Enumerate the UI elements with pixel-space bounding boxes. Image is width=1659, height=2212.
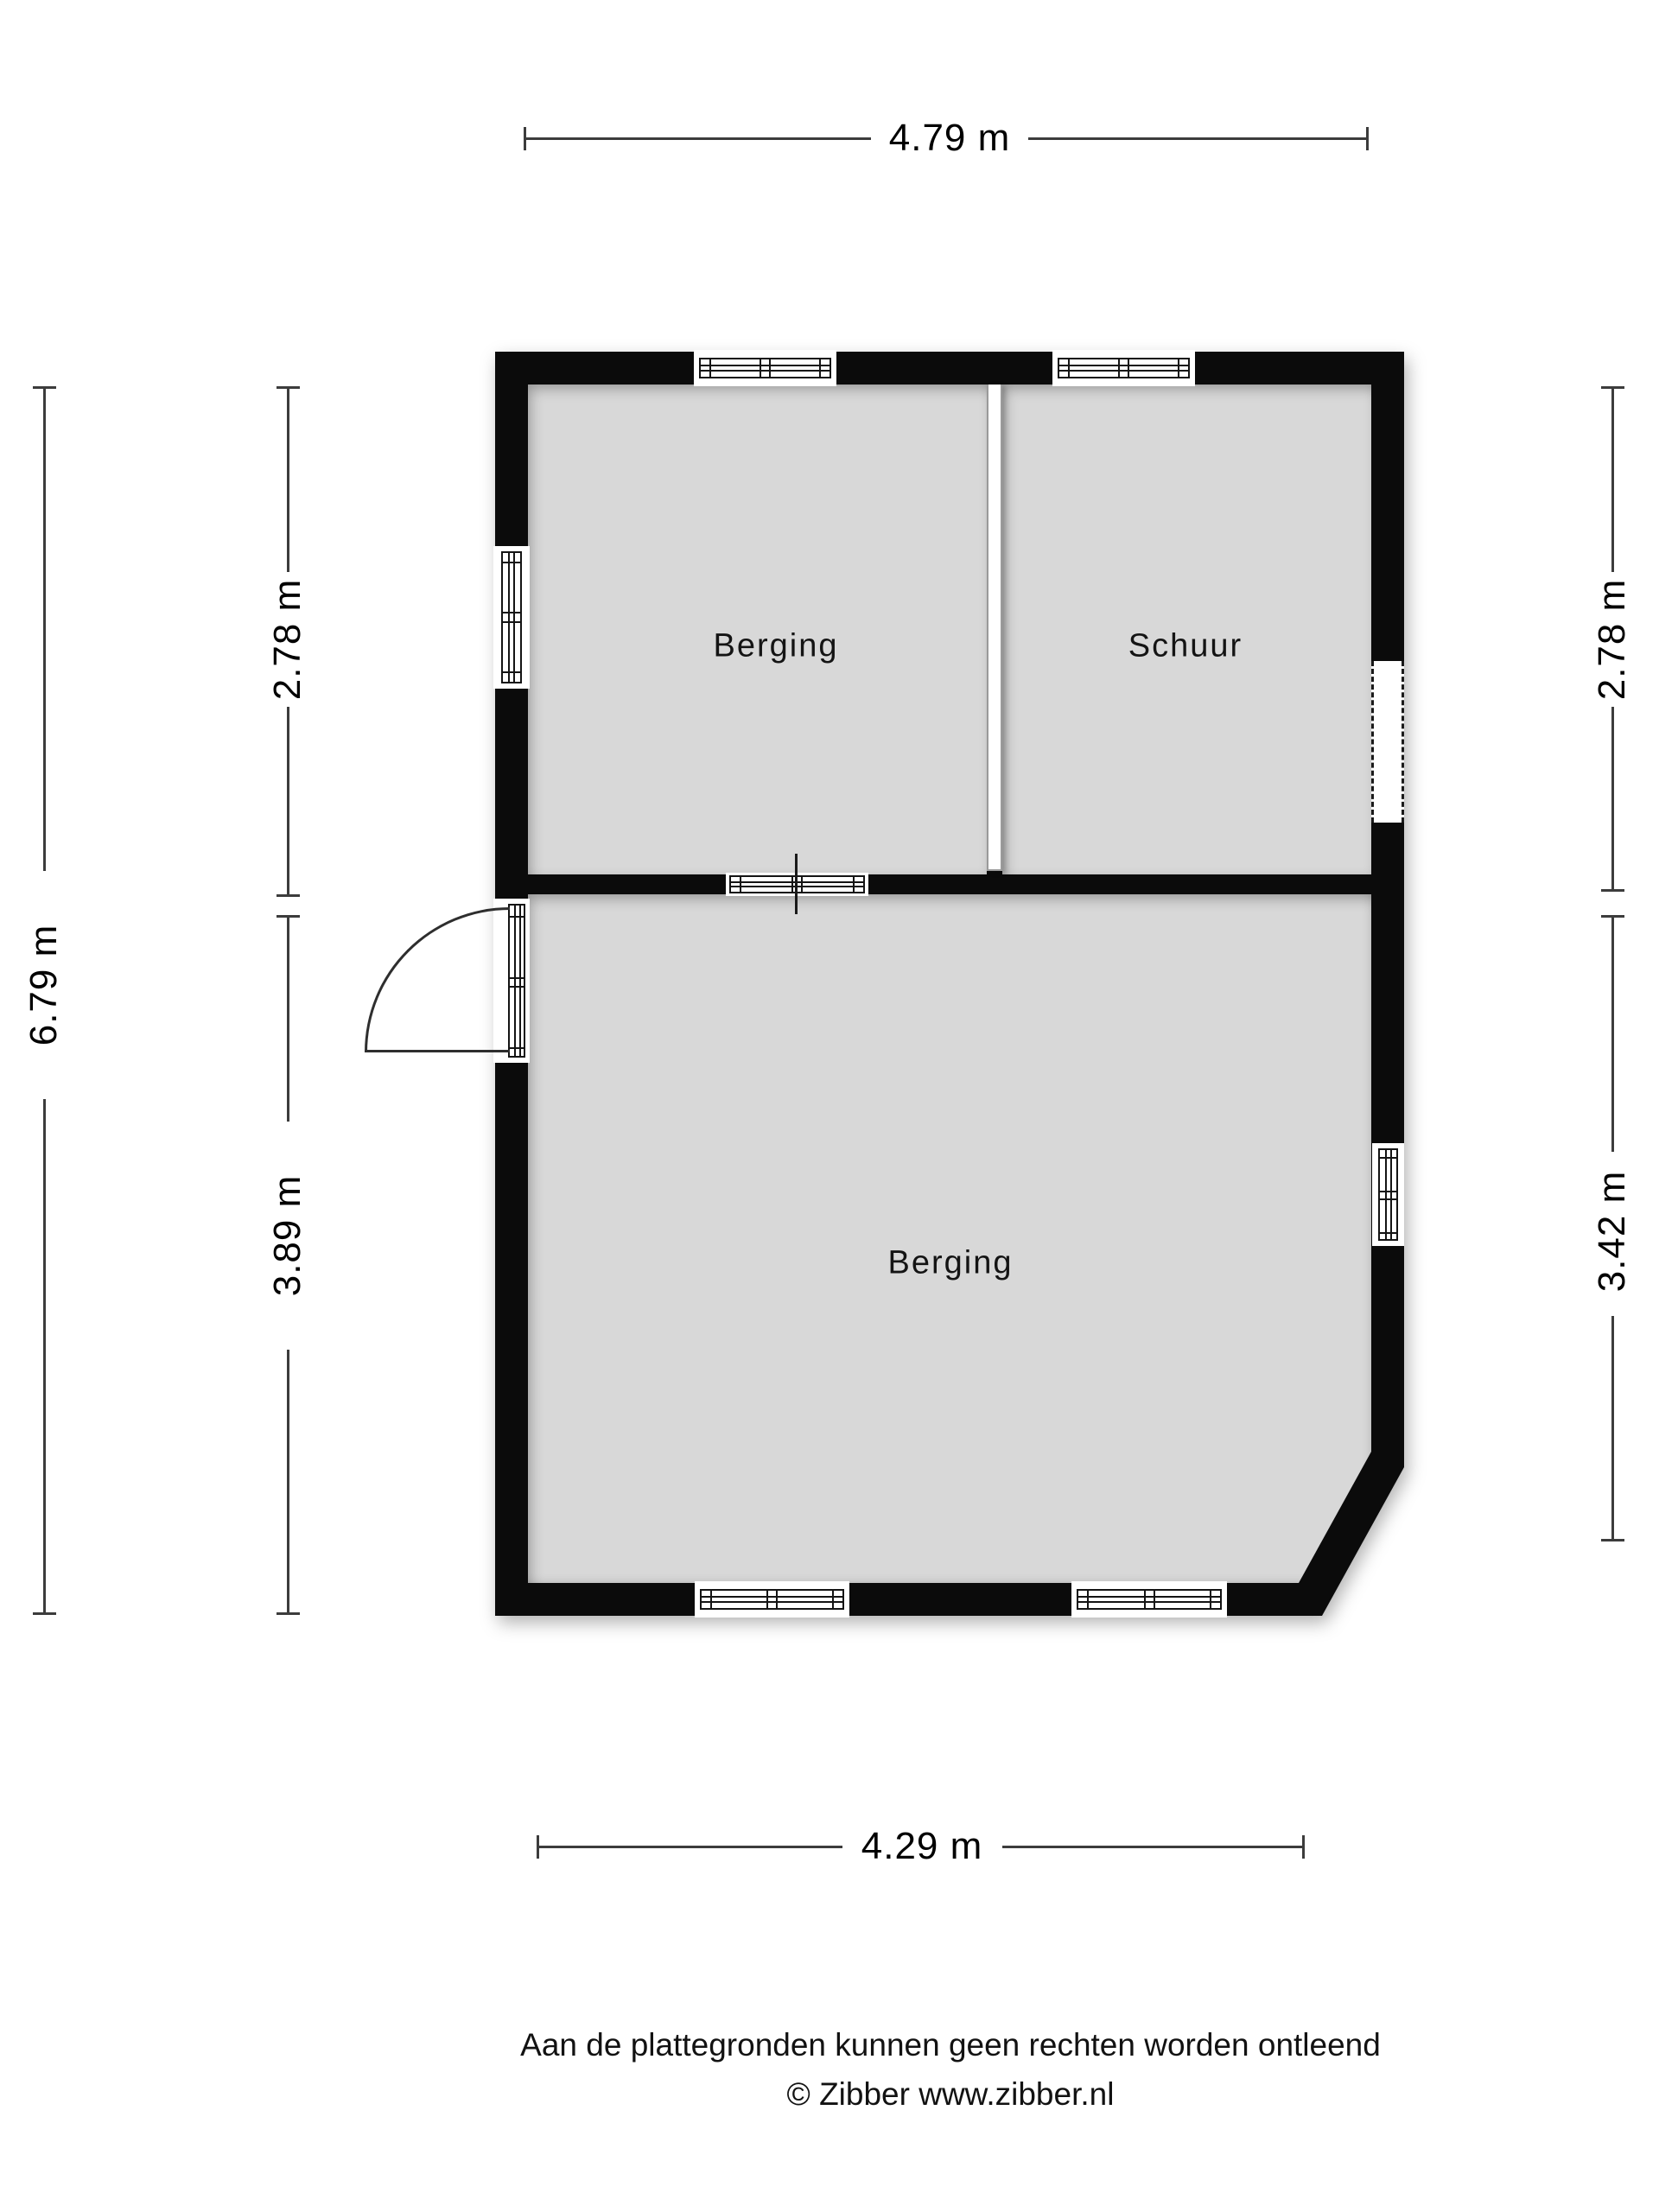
room-berging-bottom-floor: [528, 894, 1371, 1583]
partition-wall: [987, 385, 1002, 871]
room-label-berging-bottom: Berging: [888, 1245, 1014, 1282]
window-left-upper: [493, 546, 530, 689]
floor-plan-page: 4.79 m 4.29 m 6.79 m 2.78 m 3.89 m 2.78 …: [0, 0, 1659, 2212]
window-top-right: [1052, 350, 1195, 386]
window-bottom-right: [1071, 1581, 1227, 1618]
opening-schuur-right: [1371, 661, 1404, 823]
window-right-lower: [1372, 1143, 1404, 1246]
footer: Aan de plattegronden kunnen geen rechten…: [520, 2020, 1381, 2119]
footer-disclaimer: Aan de plattegronden kunnen geen rechten…: [520, 2020, 1381, 2069]
window-top-left: [694, 350, 836, 386]
window-middle-center-tick: [795, 854, 798, 914]
door-leaf: [365, 1050, 510, 1052]
footer-credit: © Zibber www.zibber.nl: [520, 2069, 1381, 2119]
room-label-schuur: Schuur: [1128, 628, 1243, 665]
room-label-berging-top: Berging: [714, 628, 839, 665]
window-bottom-left: [695, 1581, 849, 1618]
